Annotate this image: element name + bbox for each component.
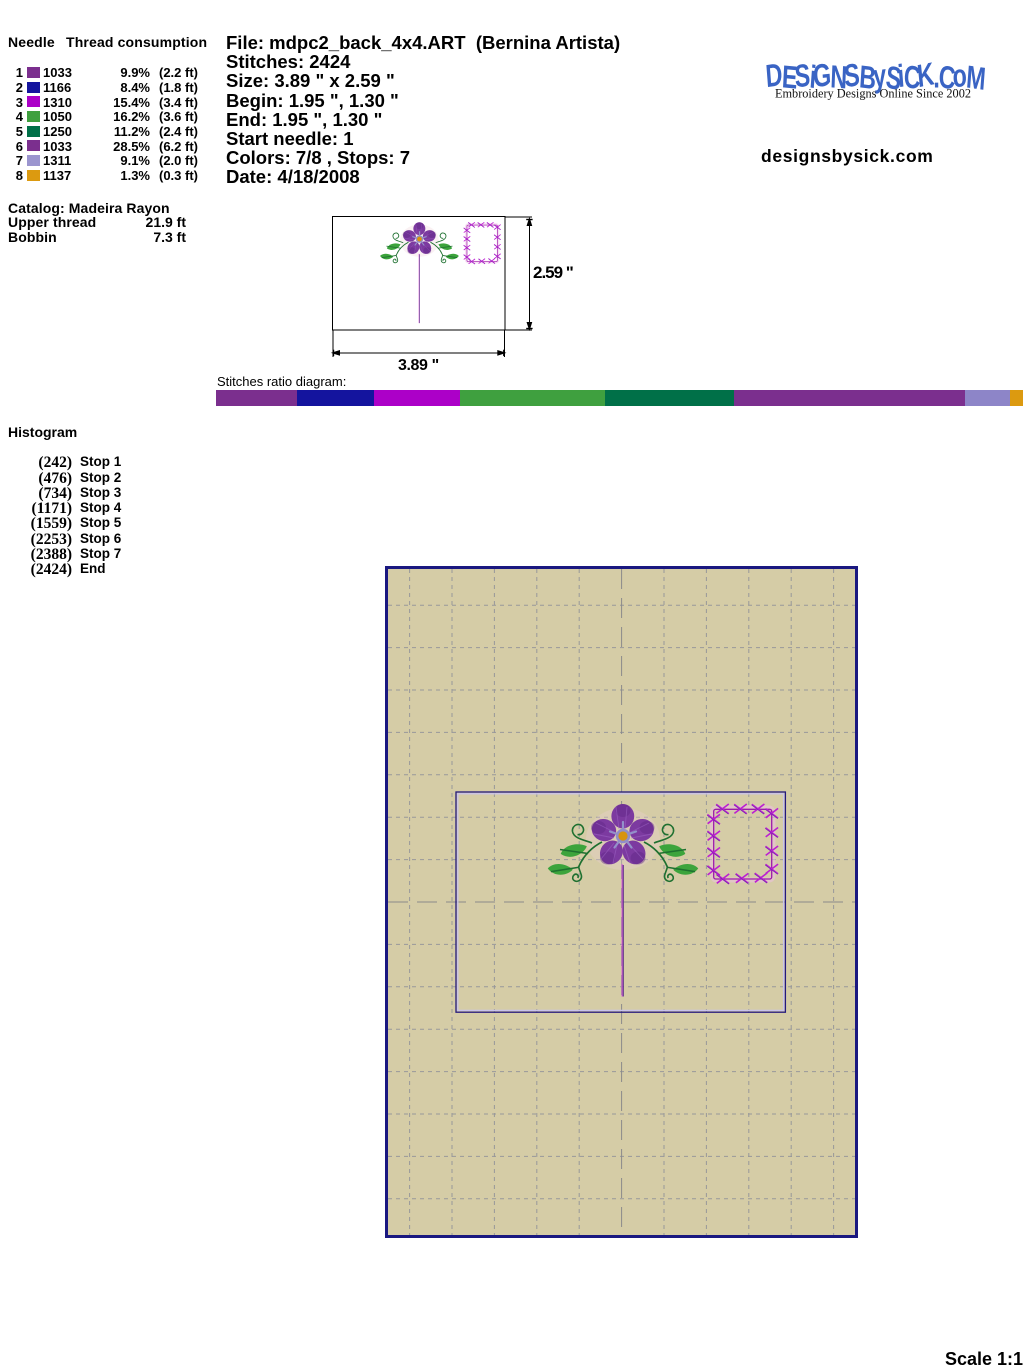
svg-text:Embroidery Designs Online Sinc: Embroidery Designs Online Since 2002 xyxy=(775,87,971,101)
